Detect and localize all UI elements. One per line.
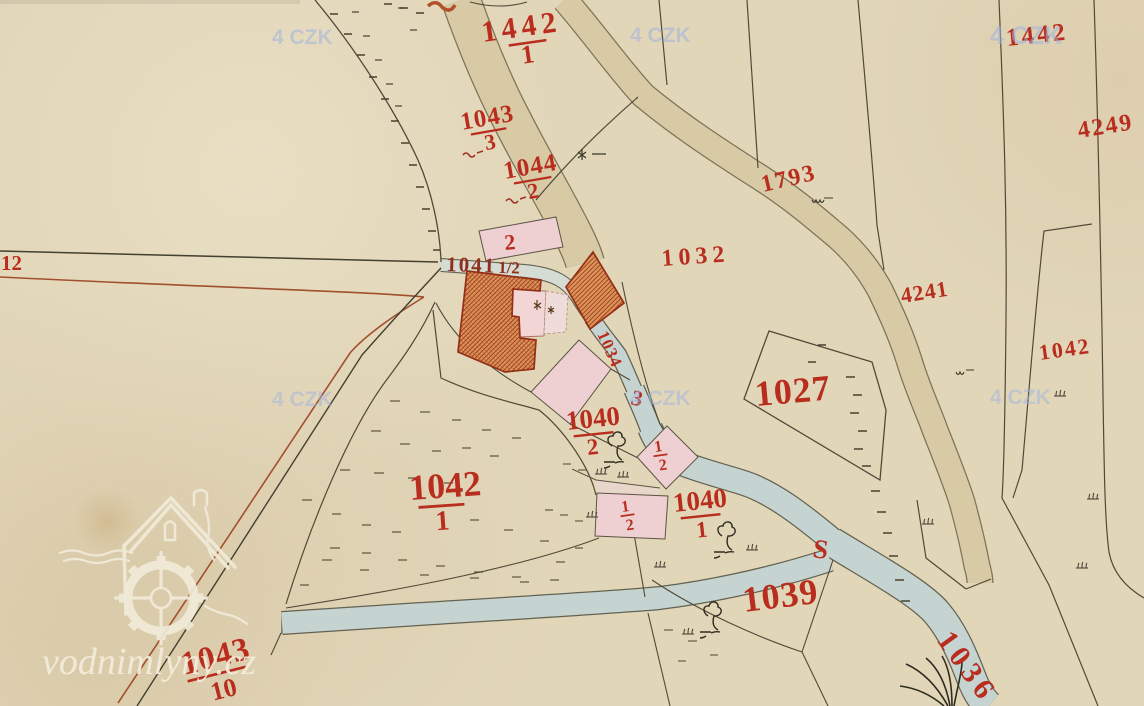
svg-text:4 CZK: 4 CZK — [990, 22, 1062, 50]
svg-text:12: 12 — [1, 251, 22, 275]
svg-text:1032: 1032 — [661, 241, 731, 272]
svg-text:4 CZK: 4 CZK — [630, 24, 691, 47]
svg-text:4 CZK: 4 CZK — [272, 26, 333, 49]
svg-text:1041: 1041 — [446, 252, 497, 278]
svg-text:1042: 1042 — [408, 463, 483, 508]
svg-text:vodnimlyny.cz: vodnimlyny.cz — [42, 641, 256, 683]
svg-text:1040: 1040 — [564, 400, 621, 435]
svg-text:1040: 1040 — [671, 482, 728, 517]
svg-text:4 CZK: 4 CZK — [990, 386, 1051, 409]
svg-text:1/2: 1/2 — [498, 258, 520, 278]
svg-text:1027: 1027 — [753, 367, 832, 413]
svg-text:4 CZK: 4 CZK — [630, 387, 691, 410]
svg-text:4 CZK: 4 CZK — [272, 388, 333, 411]
svg-text:1: 1 — [434, 505, 450, 537]
svg-text:2: 2 — [503, 229, 516, 255]
